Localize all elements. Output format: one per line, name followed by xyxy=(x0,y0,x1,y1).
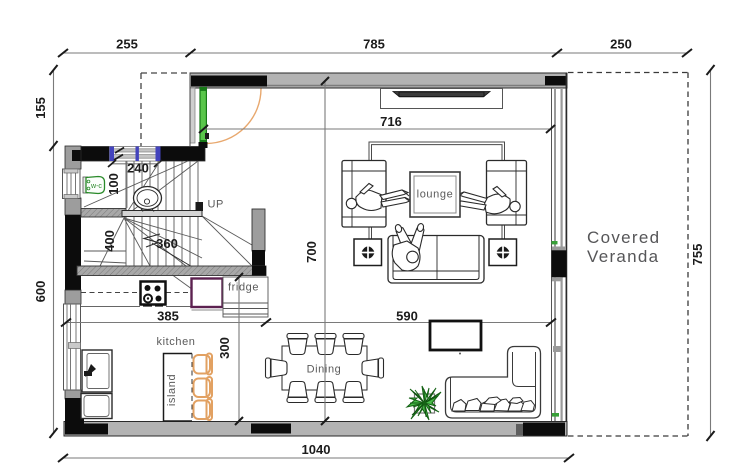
svg-text:100: 100 xyxy=(106,173,121,195)
svg-text:kitchen: kitchen xyxy=(156,336,195,348)
svg-text:Veranda: Veranda xyxy=(587,247,659,266)
svg-text:700: 700 xyxy=(304,241,319,263)
svg-text:255: 255 xyxy=(116,37,138,52)
svg-text:755: 755 xyxy=(690,244,705,266)
svg-text:155: 155 xyxy=(33,97,48,119)
svg-text:fridge: fridge xyxy=(228,282,259,294)
svg-text:island: island xyxy=(166,374,178,406)
svg-text:250: 250 xyxy=(610,37,632,52)
svg-text:716: 716 xyxy=(380,114,402,129)
svg-text:785: 785 xyxy=(363,37,385,52)
svg-text:lounge: lounge xyxy=(417,189,454,201)
svg-text:385: 385 xyxy=(157,309,179,324)
svg-text:Dining: Dining xyxy=(307,364,342,376)
svg-text:360: 360 xyxy=(156,236,178,251)
svg-text:590: 590 xyxy=(396,309,418,324)
svg-text:300: 300 xyxy=(217,337,232,359)
svg-text:Covered: Covered xyxy=(587,228,660,247)
svg-text:w-c: w-c xyxy=(90,183,102,190)
svg-text:400: 400 xyxy=(102,230,117,252)
svg-text:240: 240 xyxy=(127,161,149,176)
svg-text:1040: 1040 xyxy=(302,442,331,457)
svg-text:600: 600 xyxy=(33,281,48,303)
svg-text:UP: UP xyxy=(208,199,224,211)
